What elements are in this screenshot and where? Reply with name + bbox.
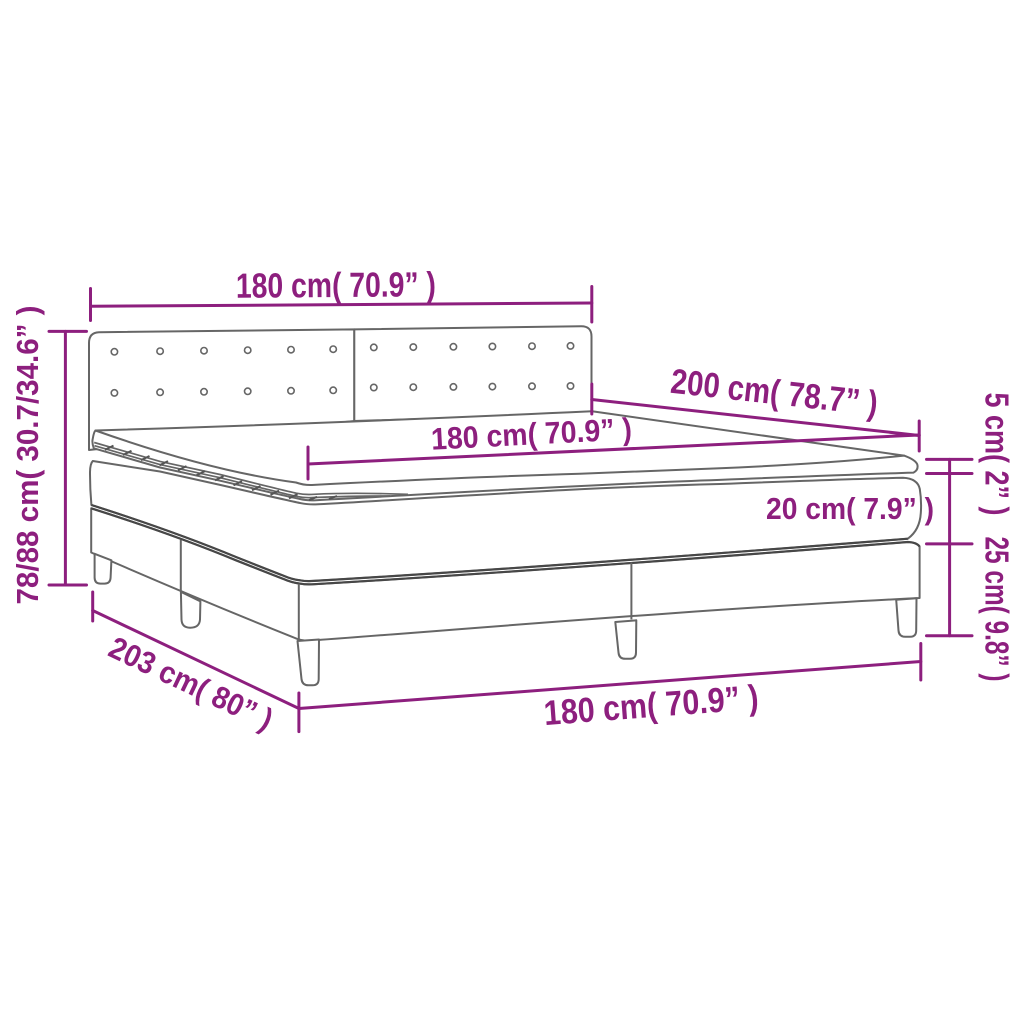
svg-text:180 cm( 70.9” ): 180 cm( 70.9” ) — [236, 265, 436, 305]
svg-text:5 cm( 2” ): 5 cm( 2” ) — [979, 393, 1016, 516]
svg-text:20 cm( 7.9” ): 20 cm( 7.9” ) — [766, 491, 934, 526]
svg-text:25 cm( 9.8” ): 25 cm( 9.8” ) — [979, 537, 1016, 682]
svg-text:78/88 cm( 30.7/34.6” ): 78/88 cm( 30.7/34.6” ) — [10, 306, 45, 605]
